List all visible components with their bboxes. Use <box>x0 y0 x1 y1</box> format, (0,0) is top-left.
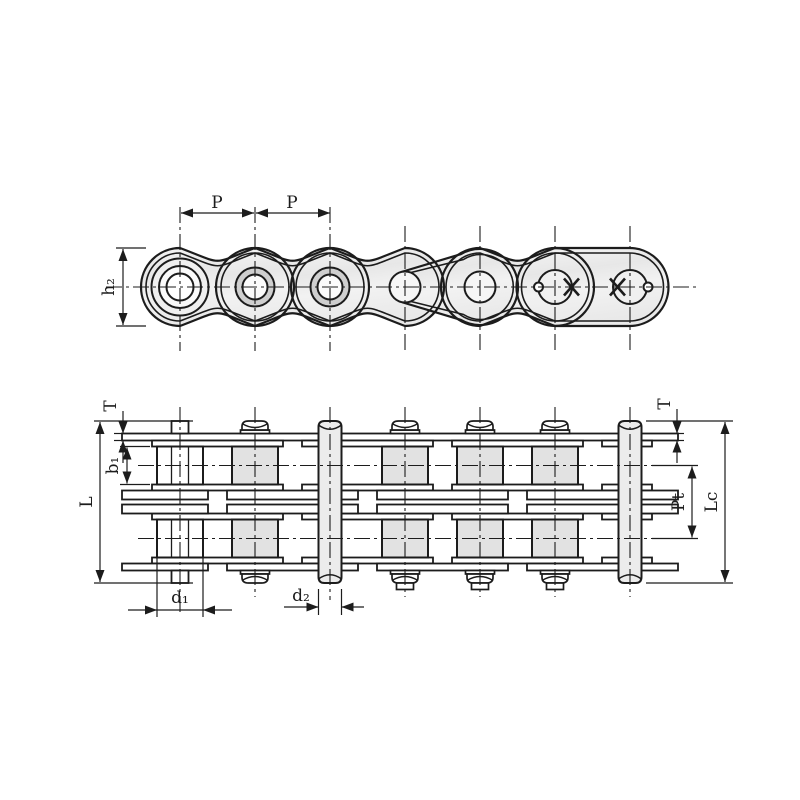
bottom-view-plan: L T T b₁ Pt Lc d₁ d₂ <box>77 398 733 617</box>
dim-label-plate-thickness-left: T <box>101 400 121 412</box>
dim-label-plate-thickness-right: T <box>655 398 675 410</box>
top-view-side-elevation: P P h₂ <box>99 193 698 351</box>
drawing-canvas: P P h₂ <box>0 0 800 800</box>
dim-label-inner-width: b₁ <box>103 457 123 475</box>
dim-label-pin-diameter: d₂ <box>292 586 310 606</box>
dim-label-pitch-1: P <box>211 193 222 213</box>
dim-label-pin-length: L <box>77 496 97 507</box>
dim-label-transverse-pitch: Pt <box>669 493 689 511</box>
dim-label-connecting-link-length: Lc <box>702 492 722 513</box>
dim-label-pitch-2: P <box>286 193 297 213</box>
dim-label-roller-diameter: d₁ <box>171 588 189 608</box>
dim-label-plate-height: h₂ <box>99 278 119 296</box>
roller-chain-technical-drawing: P P h₂ <box>0 0 800 800</box>
rollers-plan <box>157 447 578 558</box>
